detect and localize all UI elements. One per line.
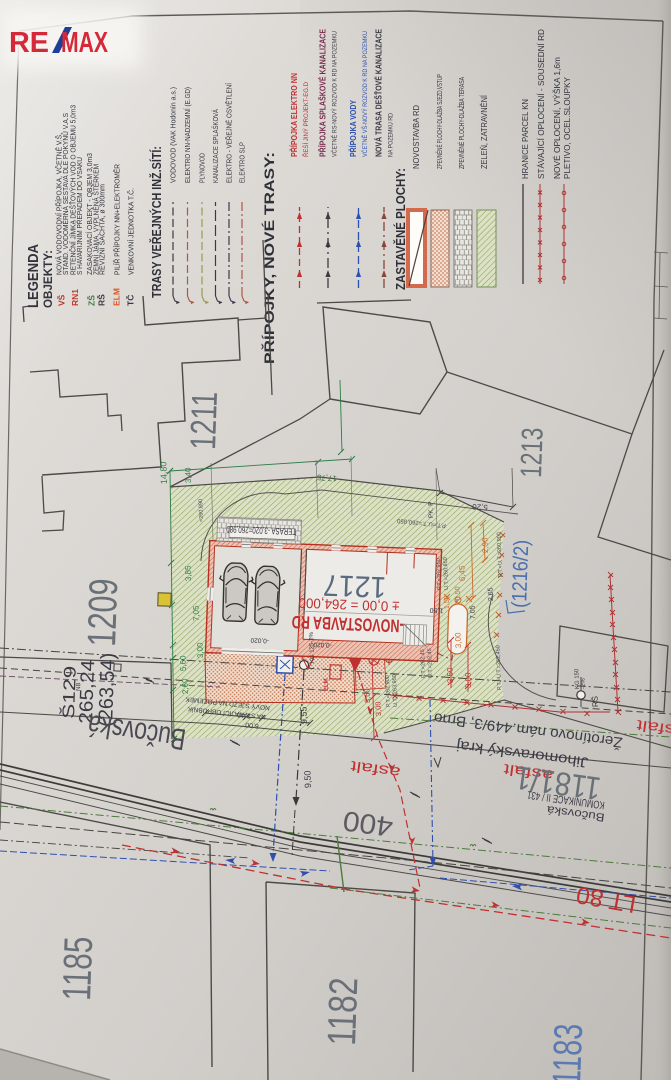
svg-text:NB: NB (76, 683, 82, 692)
svg-text:6,00: 6,00 (245, 721, 259, 729)
svg-text:P.T.=262,950: P.T.=262,950 (436, 558, 443, 590)
svg-text:RE: RE (9, 27, 49, 59)
svg-text:3,50: 3,50 (445, 667, 455, 683)
svg-text:3,40: 3,40 (183, 467, 193, 483)
svg-text:HRANICE PARCEL KN: HRANICE PARCEL KN (521, 99, 530, 179)
svg-text:VŠ: VŠ (56, 294, 67, 306)
svg-text:PŘÍPOJKA ELEKTRO NN: PŘÍPOJKA ELEKTRO NN (290, 73, 299, 157)
svg-text:KG 125-2%: KG 125-2% (309, 631, 316, 663)
svg-text:U.T.=260,850: U.T.=260,850 (443, 557, 450, 590)
svg-text:P.T.=262,900: P.T.=262,900 (385, 675, 392, 707)
svg-text:6,45: 6,45 (457, 565, 467, 581)
svg-text:REVIZNÍ ŠACHTA, ø 300mm: REVIZNÍ ŠACHTA, ø 300mm (98, 184, 107, 275)
svg-text:-0,020: -0,020 (250, 636, 269, 644)
svg-text:ŘEŠÍ JINÝ PROJEKT-EG.D: ŘEŠÍ JINÝ PROJEKT-EG.D (301, 82, 310, 157)
svg-text:RŠ: RŠ (96, 294, 107, 306)
svg-text:7,05: 7,05 (470, 605, 477, 619)
svg-text:9,55: 9,55 (298, 706, 309, 724)
svg-text:1182: 1182 (320, 977, 366, 1046)
svg-text:ZPEVNĚNÉ PLOCHY-DLAŽBA SJEZD,V: ZPEVNĚNÉ PLOCHY-DLAŽBA SJEZD,VSTUP (435, 74, 444, 169)
svg-text:PLYNOVOD: PLYNOVOD (198, 153, 207, 183)
svg-text:RN1: RN1 (70, 289, 80, 306)
svg-text:3,00: 3,00 (453, 632, 463, 648)
svg-text:2,40: 2,40 (237, 711, 251, 719)
svg-text:NA POZEMKU RD: NA POZEMKU RD (388, 113, 395, 157)
svg-text:1213: 1213 (515, 427, 550, 478)
svg-text:VČETNĚ VŠ-NOVÝ ROZVOD K RD NA: VČETNĚ VŠ-NOVÝ ROZVOD K RD NA POZEMKU (360, 31, 369, 157)
svg-text:3,85: 3,85 (183, 565, 193, 581)
svg-text:ELEKTRO SLP: ELEKTRO SLP (238, 142, 247, 183)
svg-text:VODOVOD (VAK Hodonín a.s.): VODOVOD (VAK Hodonín a.s.) (169, 87, 178, 183)
svg-text:=260,890: =260,890 (198, 499, 205, 522)
svg-text:5,60: 5,60 (178, 655, 188, 671)
svg-text:ZŠ: ZŠ (86, 295, 97, 306)
svg-text:PŘÍPOJKA VODY: PŘÍPOJKA VODY (349, 99, 358, 157)
svg-text:PLETIVO, OCEL.SLOUPKY: PLETIVO, OCEL.SLOUPKY (563, 76, 572, 179)
svg-text:VENKOVNÍ JEDNOTKA T.Č.: VENKOVNÍ JEDNOTKA T.Č. (127, 188, 136, 275)
svg-text:TRASY VEŘEJNÝCH INŽ.SÍTÍ:: TRASY VEŘEJNÝCH INŽ.SÍTÍ: (149, 146, 164, 298)
svg-text:0,50: 0,50 (455, 586, 462, 600)
svg-text:1211: 1211 (182, 391, 225, 450)
svg-text:PŘÍPOJKA SPLAŠKOVÉ KANALIZACE: PŘÍPOJKA SPLAŠKOVÉ KANALIZACE (319, 28, 328, 157)
svg-text:NOVOSTAVBA RD: NOVOSTAVBA RD (412, 105, 421, 169)
svg-text:3,50: 3,50 (362, 688, 372, 703)
svg-text:ZPEVNĚNÉ PLOCHY-DLAŽBA TERASA: ZPEVNĚNÉ PLOCHY-DLAŽBA TERASA (457, 77, 466, 169)
svg-text:MAX: MAX (61, 27, 108, 59)
svg-text:PK. P: PK. P (427, 501, 435, 518)
svg-text:VČETNĚ RS-NOVÝ ROZVOD K RD NA: VČETNĚ RS-NOVÝ ROZVOD K RD NA POZEMKU (330, 31, 339, 157)
svg-text:P.T.=262,45: P.T.=262,45 (420, 649, 427, 678)
svg-text:-0,020: -0,020 (313, 641, 332, 649)
svg-text:ELM: ELM (112, 288, 122, 306)
svg-text:3,00: 3,00 (463, 672, 473, 688)
svg-text:NOVÉ OPLOCENÍ, VÝŠKA 1,6m: NOVÉ OPLOCENÍ, VÝŠKA 1,6m (553, 57, 562, 179)
svg-text:U.T.=263,950: U.T.=263,950 (392, 674, 399, 707)
svg-text:TČ: TČ (125, 295, 136, 306)
svg-text:ELEKTRO NN-NADZEMNÍ (E.GD): ELEKTRO NN-NADZEMNÍ (E.GD) (183, 87, 192, 183)
svg-text:LEGENDA: LEGENDA (25, 244, 42, 308)
svg-text:U.T.=262,45: U.T.=262,45 (427, 648, 434, 678)
svg-text:1,50: 1,50 (444, 595, 451, 609)
svg-text:(1216/2): (1216/2) (508, 539, 533, 608)
svg-text:STÁVAJÍCÍ OPLOCENÍ - SOUSEDNÍ: STÁVAJÍCÍ OPLOCENÍ - SOUSEDNÍ RD (537, 29, 546, 179)
svg-text:PILÍŘ PŘÍPOJKY NN+ELEKTROMĚR: PILÍŘ PŘÍPOJKY NN+ELEKTROMĚR (113, 164, 122, 275)
svg-text:7,05: 7,05 (191, 605, 201, 621)
svg-text:17,75: 17,75 (316, 473, 337, 483)
svg-text:1,50: 1,50 (429, 606, 443, 614)
svg-text:2,65: 2,65 (488, 587, 495, 601)
svg-text:PŘÍPOJKY, NOVÉ TRASY:: PŘÍPOJKY, NOVÉ TRASY: (260, 152, 277, 364)
svg-text:2,90: 2,90 (480, 537, 490, 553)
svg-text:NOVÁ TRASA DEŠŤOVÉ KANALIZACE: NOVÁ TRASA DEŠŤOVÉ KANALIZACE (375, 28, 384, 157)
svg-text:S HAVARIJNÍM PŘEPADEM DO VSAKU: S HAVARIJNÍM PŘEPADEM DO VSAKU (75, 157, 84, 275)
svg-text:OBJEKTY:: OBJEKTY: (41, 250, 55, 308)
svg-text:-2%: -2% (581, 678, 587, 690)
svg-text:ELM: ELM (324, 678, 330, 691)
svg-text:1183: 1183 (545, 1023, 591, 1080)
svg-text:2,60: 2,60 (180, 678, 190, 694)
svg-text:KANALIZACE SPLAŠKOVÁ: KANALIZACE SPLAŠKOVÁ (211, 108, 220, 183)
svg-text:ELEKTRO - VEŘEJNÉ OSVĚTLENÍ: ELEKTRO - VEŘEJNÉ OSVĚTLENÍ (225, 82, 234, 183)
svg-text:ZASTAVĚNÉ PLOCHY:: ZASTAVĚNÉ PLOCHY: (393, 168, 408, 290)
svg-text:1209: 1209 (80, 578, 126, 647)
svg-text:5,20: 5,20 (471, 502, 488, 512)
svg-text:1185: 1185 (55, 936, 101, 1001)
svg-text:RŠ: RŠ (591, 696, 600, 707)
svg-text:3,00: 3,00 (373, 701, 383, 716)
svg-text:3,00: 3,00 (195, 642, 205, 658)
svg-text:14,80: 14,80 (158, 461, 169, 484)
svg-text:ZELEŇ, ZATRAVNĚNÍ: ZELEŇ, ZATRAVNĚNÍ (480, 94, 489, 169)
svg-text:9,50: 9,50 (302, 770, 313, 788)
